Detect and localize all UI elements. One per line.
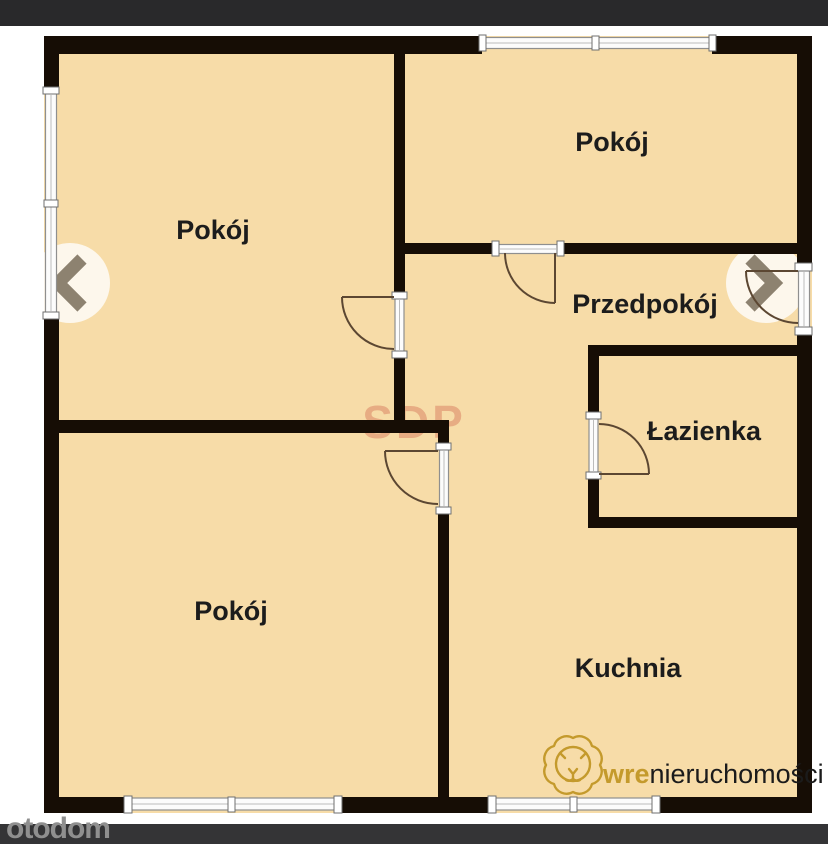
viewer-bottom-bar bbox=[0, 824, 828, 844]
agency-logo-text: wrenieruchomości bbox=[602, 759, 824, 789]
label-room-bottom-left: Pokój bbox=[194, 596, 268, 626]
label-bathroom: Łazienka bbox=[647, 416, 762, 446]
prev-photo-button[interactable] bbox=[30, 243, 110, 323]
label-room-top-left: Pokój bbox=[176, 215, 250, 245]
label-hallway: Przedpokój bbox=[572, 289, 718, 319]
label-kitchen: Kuchnia bbox=[575, 653, 682, 683]
portal-logo-otodom: otodom bbox=[6, 812, 110, 844]
window-left-wall bbox=[43, 87, 59, 319]
viewer-top-bar bbox=[0, 0, 828, 26]
prev-button-circle bbox=[30, 243, 110, 323]
window-bottom-left bbox=[124, 796, 342, 813]
window-top-wall bbox=[479, 35, 716, 51]
label-room-top-right: Pokój bbox=[575, 127, 649, 157]
listing-photo-viewer: SDP Pokój Pokój Przedpokój Łazienka Pokó… bbox=[0, 0, 828, 844]
window-bottom-kitchen bbox=[488, 796, 660, 813]
